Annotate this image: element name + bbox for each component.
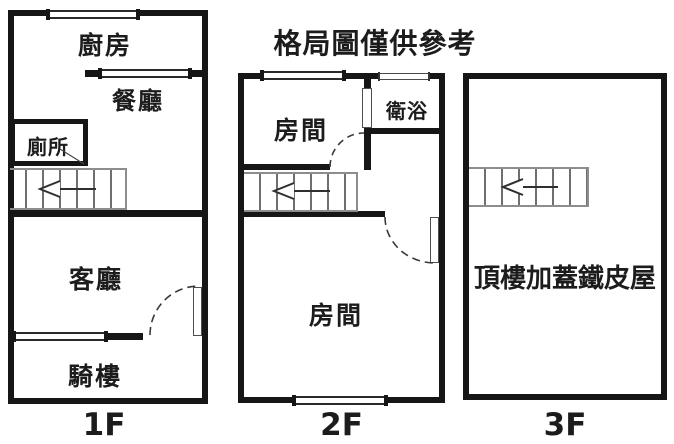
wall-bath-bottom	[364, 128, 440, 134]
wall-stair-living	[8, 210, 208, 217]
room-label-living: 客廳	[46, 260, 146, 296]
room-label-arcade: 騎樓	[45, 357, 145, 393]
room-label-rooftop: 頂樓加蓋鐵皮屋	[466, 258, 664, 295]
wall-bedroom-upper-bottom	[242, 164, 330, 170]
outer-wall-3f	[463, 73, 667, 400]
stairs-3f	[469, 167, 589, 207]
door-panel	[430, 217, 439, 263]
room-label-kitchen: 廚房	[55, 26, 155, 62]
stairs-2f	[244, 172, 358, 212]
room-label-bedroom-main: 房間	[286, 296, 386, 332]
floor-label-2f: 2F	[238, 407, 445, 443]
window	[100, 69, 190, 78]
floor-label-3f: 3F	[463, 407, 667, 443]
door-panel	[193, 287, 202, 336]
room-label-dining: 餐廳	[88, 81, 188, 116]
floorplan-diagram: 格局圖僅供參考 廚房 餐廳 廁所 客廳 騎樓 1F	[0, 0, 674, 444]
room-label-bedroom-upper: 房間	[251, 111, 351, 147]
window	[262, 71, 344, 80]
stairs-1f	[10, 168, 127, 210]
room-label-toilet: 廁所	[17, 131, 79, 160]
window	[380, 73, 428, 80]
window	[294, 396, 386, 405]
door-panel	[362, 88, 372, 128]
plan-title: 格局圖僅供參考	[240, 22, 510, 62]
room-label-bathroom: 衛浴	[377, 95, 437, 124]
window	[48, 10, 138, 19]
window	[14, 332, 106, 341]
floor-label-1f: 1F	[8, 407, 200, 443]
